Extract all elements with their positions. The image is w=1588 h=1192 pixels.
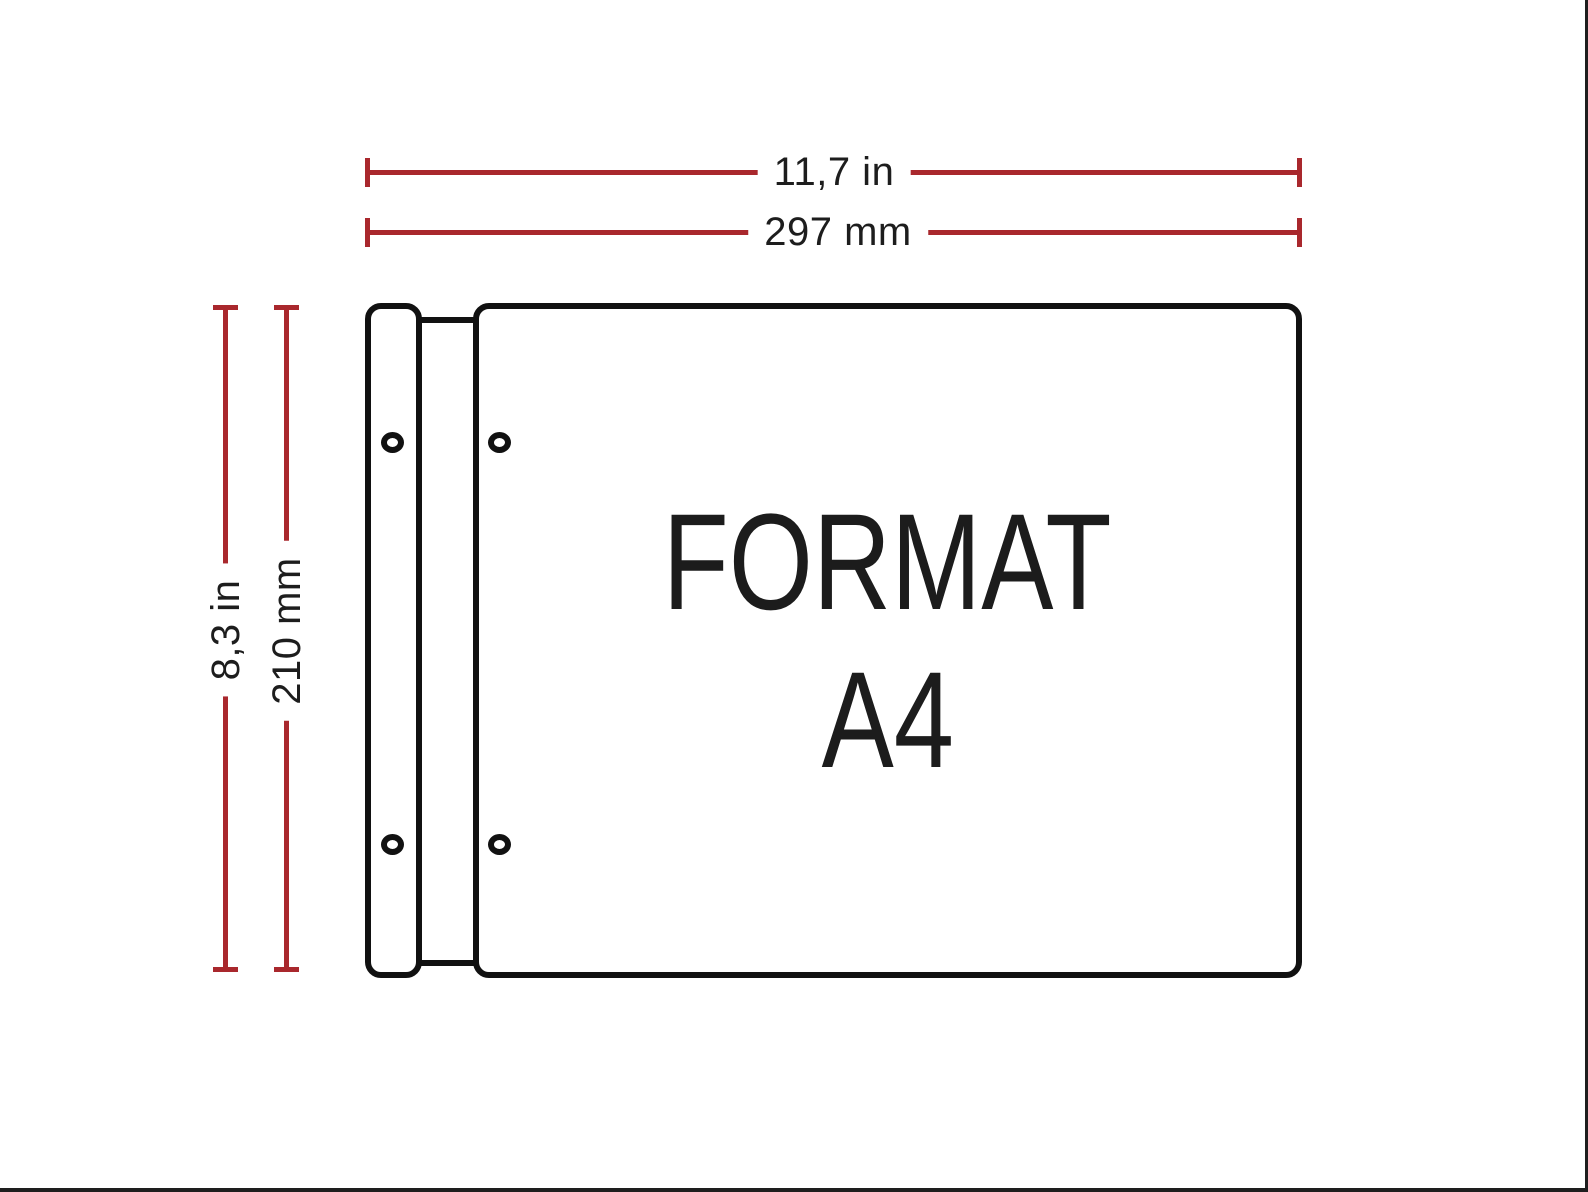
binding-spine-strip xyxy=(416,317,479,966)
dimension-end-tick xyxy=(365,218,370,247)
width-dimension-label-mm: 297 mm xyxy=(748,209,928,255)
format-title-line1: FORMAT xyxy=(663,484,1112,642)
a4-format-diagram: 11,7 in 297 mm 8,3 in 210 mm FORMAT A4 xyxy=(0,0,1588,1192)
dimension-end-tick xyxy=(213,967,238,972)
binding-hole-icon xyxy=(488,834,511,855)
dimension-end-tick xyxy=(365,158,370,187)
dimension-end-tick xyxy=(1297,218,1302,247)
binding-hole-icon xyxy=(488,432,511,453)
dimension-end-tick xyxy=(1297,158,1302,187)
binding-hole-icon xyxy=(381,834,404,855)
height-dimension-label-mm: 210 mm xyxy=(264,541,310,721)
page-format-title: FORMAT A4 xyxy=(473,484,1302,800)
dimension-end-tick xyxy=(274,967,299,972)
height-dimension-label-inches: 8,3 in xyxy=(203,564,249,697)
format-title-line2: A4 xyxy=(821,642,953,800)
width-dimension-label-inches: 11,7 in xyxy=(758,149,911,195)
dimension-end-tick xyxy=(213,305,238,310)
dimension-end-tick xyxy=(274,305,299,310)
cover-edge-strip xyxy=(365,303,422,978)
binding-hole-icon xyxy=(381,432,404,453)
